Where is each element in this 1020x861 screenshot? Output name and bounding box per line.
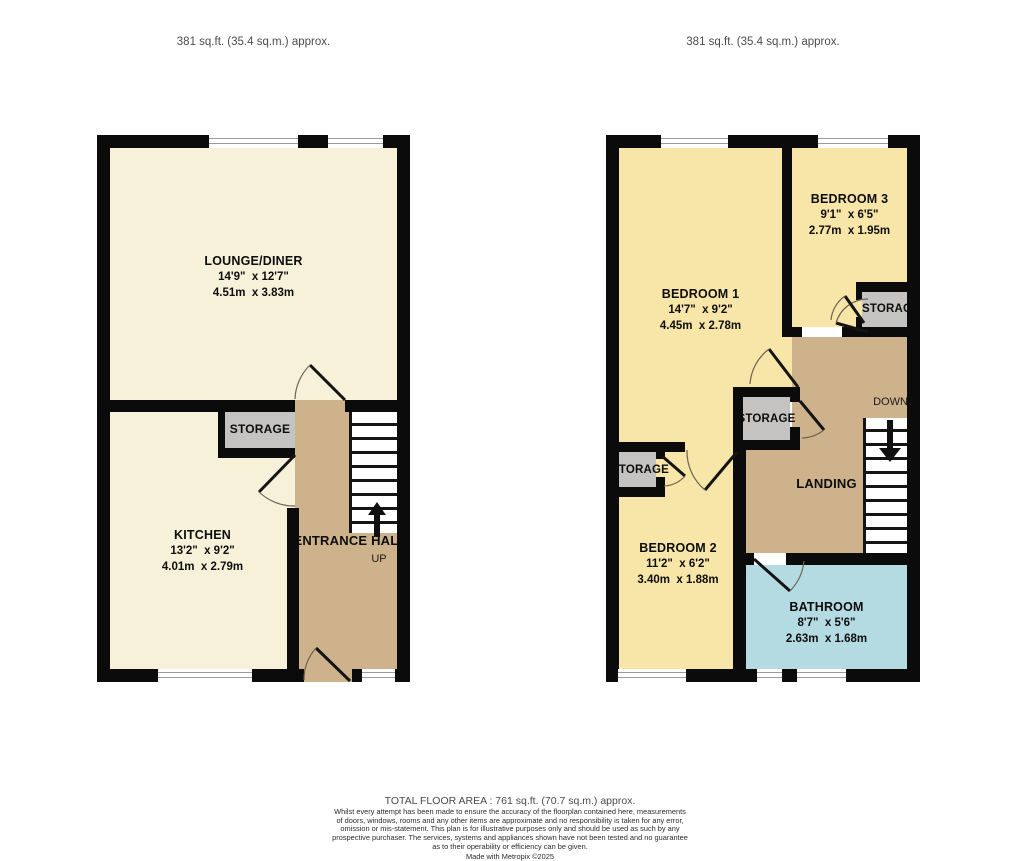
bedroom-1-label: BEDROOM 1 14'7" x 9'2" 4.45m x 2.78m bbox=[619, 286, 782, 334]
wall-segment bbox=[606, 135, 619, 682]
room-dims-metric: 2.63m x 1.68m bbox=[746, 631, 907, 647]
entrance-hall-label: ENTRANCE HALL bbox=[250, 533, 450, 549]
lounge-diner-label: LOUNGE/DINER 14'9" x 12'7" 4.51m x 3.83m bbox=[110, 253, 397, 301]
first-floor-plan: BEDROOM 1 14'7" x 9'2" 4.45m x 2.78m BED… bbox=[606, 135, 920, 682]
up-arrow-shaft bbox=[374, 515, 380, 537]
first-floor-area-label: 381 sq.ft. (35.4 sq.m.) approx. bbox=[606, 36, 920, 48]
wall-segment bbox=[782, 327, 802, 337]
wall-segment bbox=[619, 487, 665, 497]
room-name: LOUNGE/DINER bbox=[110, 253, 397, 269]
window bbox=[797, 669, 846, 682]
metropix-credit: Made with Metropix ©2025 bbox=[0, 852, 1020, 861]
storage-left-label: STORAGE bbox=[610, 462, 670, 478]
total-floor-area: TOTAL FLOOR AREA : 761 sq.ft. (70.7 sq.m… bbox=[0, 794, 1020, 808]
wall-segment bbox=[656, 477, 665, 487]
wall-segment bbox=[790, 427, 800, 450]
room-dims-metric: 2.77m x 1.95m bbox=[792, 223, 907, 239]
bedroom-3-label: BEDROOM 3 9'1" x 6'5" 2.77m x 1.95m bbox=[792, 191, 907, 239]
wall-segment bbox=[907, 135, 920, 682]
wall-segment bbox=[790, 387, 800, 402]
landing-corridor bbox=[746, 440, 800, 553]
wall-segment bbox=[856, 317, 862, 327]
room-name: BEDROOM 2 bbox=[619, 540, 737, 556]
room-dims-imperial: 9'1" x 6'5" bbox=[792, 207, 907, 223]
room-dims-metric: 4.51m x 3.83m bbox=[110, 285, 397, 301]
wall-segment bbox=[97, 135, 110, 682]
landing-label: LANDING bbox=[746, 476, 907, 492]
room-name: BEDROOM 3 bbox=[792, 191, 907, 207]
down-arrow-icon bbox=[879, 448, 901, 462]
bathroom-label: BATHROOM 8'7" x 5'6" 2.63m x 1.68m bbox=[746, 599, 907, 647]
window bbox=[158, 669, 252, 682]
room-dims-metric: 4.45m x 2.78m bbox=[619, 318, 782, 334]
wall-segment bbox=[287, 508, 299, 669]
down-arrow-shaft bbox=[887, 420, 893, 448]
wall-segment bbox=[782, 148, 792, 337]
storage-label: STORAGE bbox=[218, 421, 302, 437]
window bbox=[618, 669, 686, 682]
bedroom-2-doorway bbox=[685, 442, 737, 452]
storage-middle-label: STORAGE bbox=[736, 411, 797, 427]
window bbox=[661, 135, 728, 148]
wall-segment bbox=[786, 553, 907, 565]
wall-segment bbox=[218, 448, 295, 458]
window bbox=[362, 669, 395, 682]
wall-segment bbox=[110, 400, 295, 412]
room-dims-imperial: 14'9" x 12'7" bbox=[110, 269, 397, 285]
room-dims-metric: 4.01m x 2.79m bbox=[110, 559, 295, 575]
wall-segment bbox=[656, 452, 665, 459]
up-arrow-icon bbox=[368, 502, 386, 515]
wall-segment bbox=[619, 442, 685, 452]
wall-segment bbox=[842, 327, 907, 337]
wall-segment bbox=[856, 292, 862, 300]
disclaimer-line: as to their operability or efficiency ca… bbox=[0, 843, 1020, 852]
staircase-edge bbox=[349, 412, 352, 533]
window bbox=[757, 669, 782, 682]
stairs-up-label: UP bbox=[359, 553, 399, 565]
wall-segment bbox=[856, 282, 907, 292]
room-name: BEDROOM 1 bbox=[619, 286, 782, 302]
ground-floor-plan: LOUNGE/DINER 14'9" x 12'7" 4.51m x 3.83m… bbox=[97, 135, 410, 682]
room-dims-imperial: 11'2" x 6'2" bbox=[619, 556, 737, 572]
wall-segment bbox=[397, 135, 410, 682]
wall-segment bbox=[733, 442, 746, 669]
room-dims-imperial: 14'7" x 9'2" bbox=[619, 302, 782, 318]
room-dims-imperial: 8'7" x 5'6" bbox=[746, 615, 907, 631]
window bbox=[328, 135, 383, 148]
window bbox=[818, 135, 888, 148]
footer: TOTAL FLOOR AREA : 761 sq.ft. (70.7 sq.m… bbox=[0, 794, 1020, 861]
wall-segment bbox=[345, 400, 397, 412]
room-name: BATHROOM bbox=[746, 599, 907, 615]
front-door-opening bbox=[304, 669, 352, 682]
wall-segment bbox=[746, 553, 754, 565]
bedroom-2-label: BEDROOM 2 11'2" x 6'2" 3.40m x 1.88m bbox=[619, 540, 737, 588]
room-dims-metric: 3.40m x 1.88m bbox=[619, 572, 737, 588]
ground-floor-area-label: 381 sq.ft. (35.4 sq.m.) approx. bbox=[97, 36, 410, 48]
window bbox=[209, 135, 298, 148]
floorplan-page: { "headers": { "ground_area": "381 sq.ft… bbox=[0, 0, 1020, 859]
